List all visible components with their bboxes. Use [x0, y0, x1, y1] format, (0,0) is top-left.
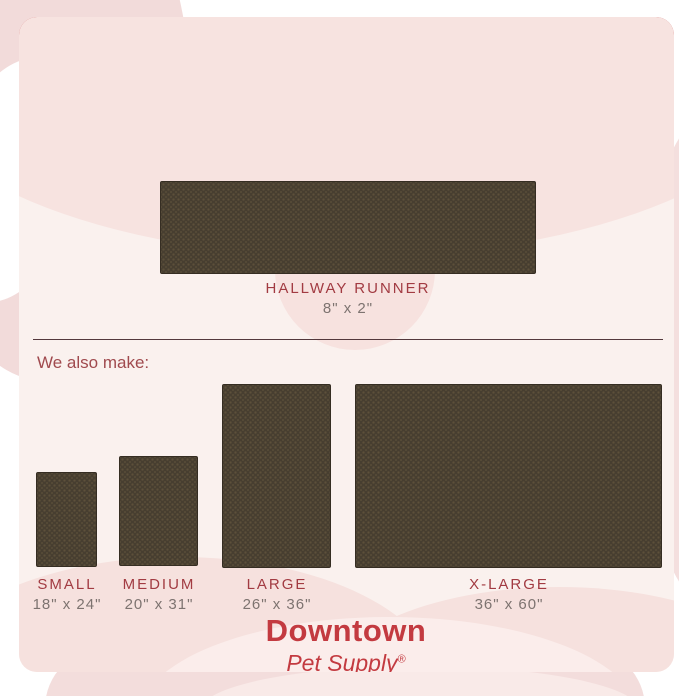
brand-subtitle: Pet Supply®: [196, 650, 496, 672]
brand-logo: Downtown Pet Supply®: [196, 613, 496, 672]
rug-xlarge: [355, 384, 662, 568]
brand-name: Downtown: [196, 613, 496, 649]
infographic-card: A SIZE & SHAPE FOR EVERY ROOM OF THE HOU…: [19, 17, 674, 672]
rug-small: [36, 472, 97, 567]
runner-dims: 8" x 2": [248, 300, 448, 317]
size-label-xlarge: X-LARGE 36" x 60": [429, 576, 589, 613]
also-make-label: We also make:: [37, 353, 149, 373]
registered-trademark-symbol: ®: [398, 653, 406, 665]
product-size-infographic: A SIZE & SHAPE FOR EVERY ROOM OF THE HOU…: [0, 0, 679, 696]
rug-hallway-runner: [160, 181, 536, 274]
rug-large: [222, 384, 331, 568]
section-divider: [33, 339, 663, 340]
size-dims: 36" x 60": [429, 596, 589, 613]
size-dims: 26" x 36": [197, 596, 357, 613]
rug-medium: [119, 456, 198, 566]
size-label-large: LARGE 26" x 36": [197, 576, 357, 613]
size-name: X-LARGE: [429, 576, 589, 593]
brand-subtitle-text: Pet Supply: [286, 650, 397, 672]
runner-label-block: HALLWAY RUNNER 8" x 2": [248, 280, 448, 317]
size-name: LARGE: [197, 576, 357, 593]
runner-name: HALLWAY RUNNER: [248, 280, 448, 297]
